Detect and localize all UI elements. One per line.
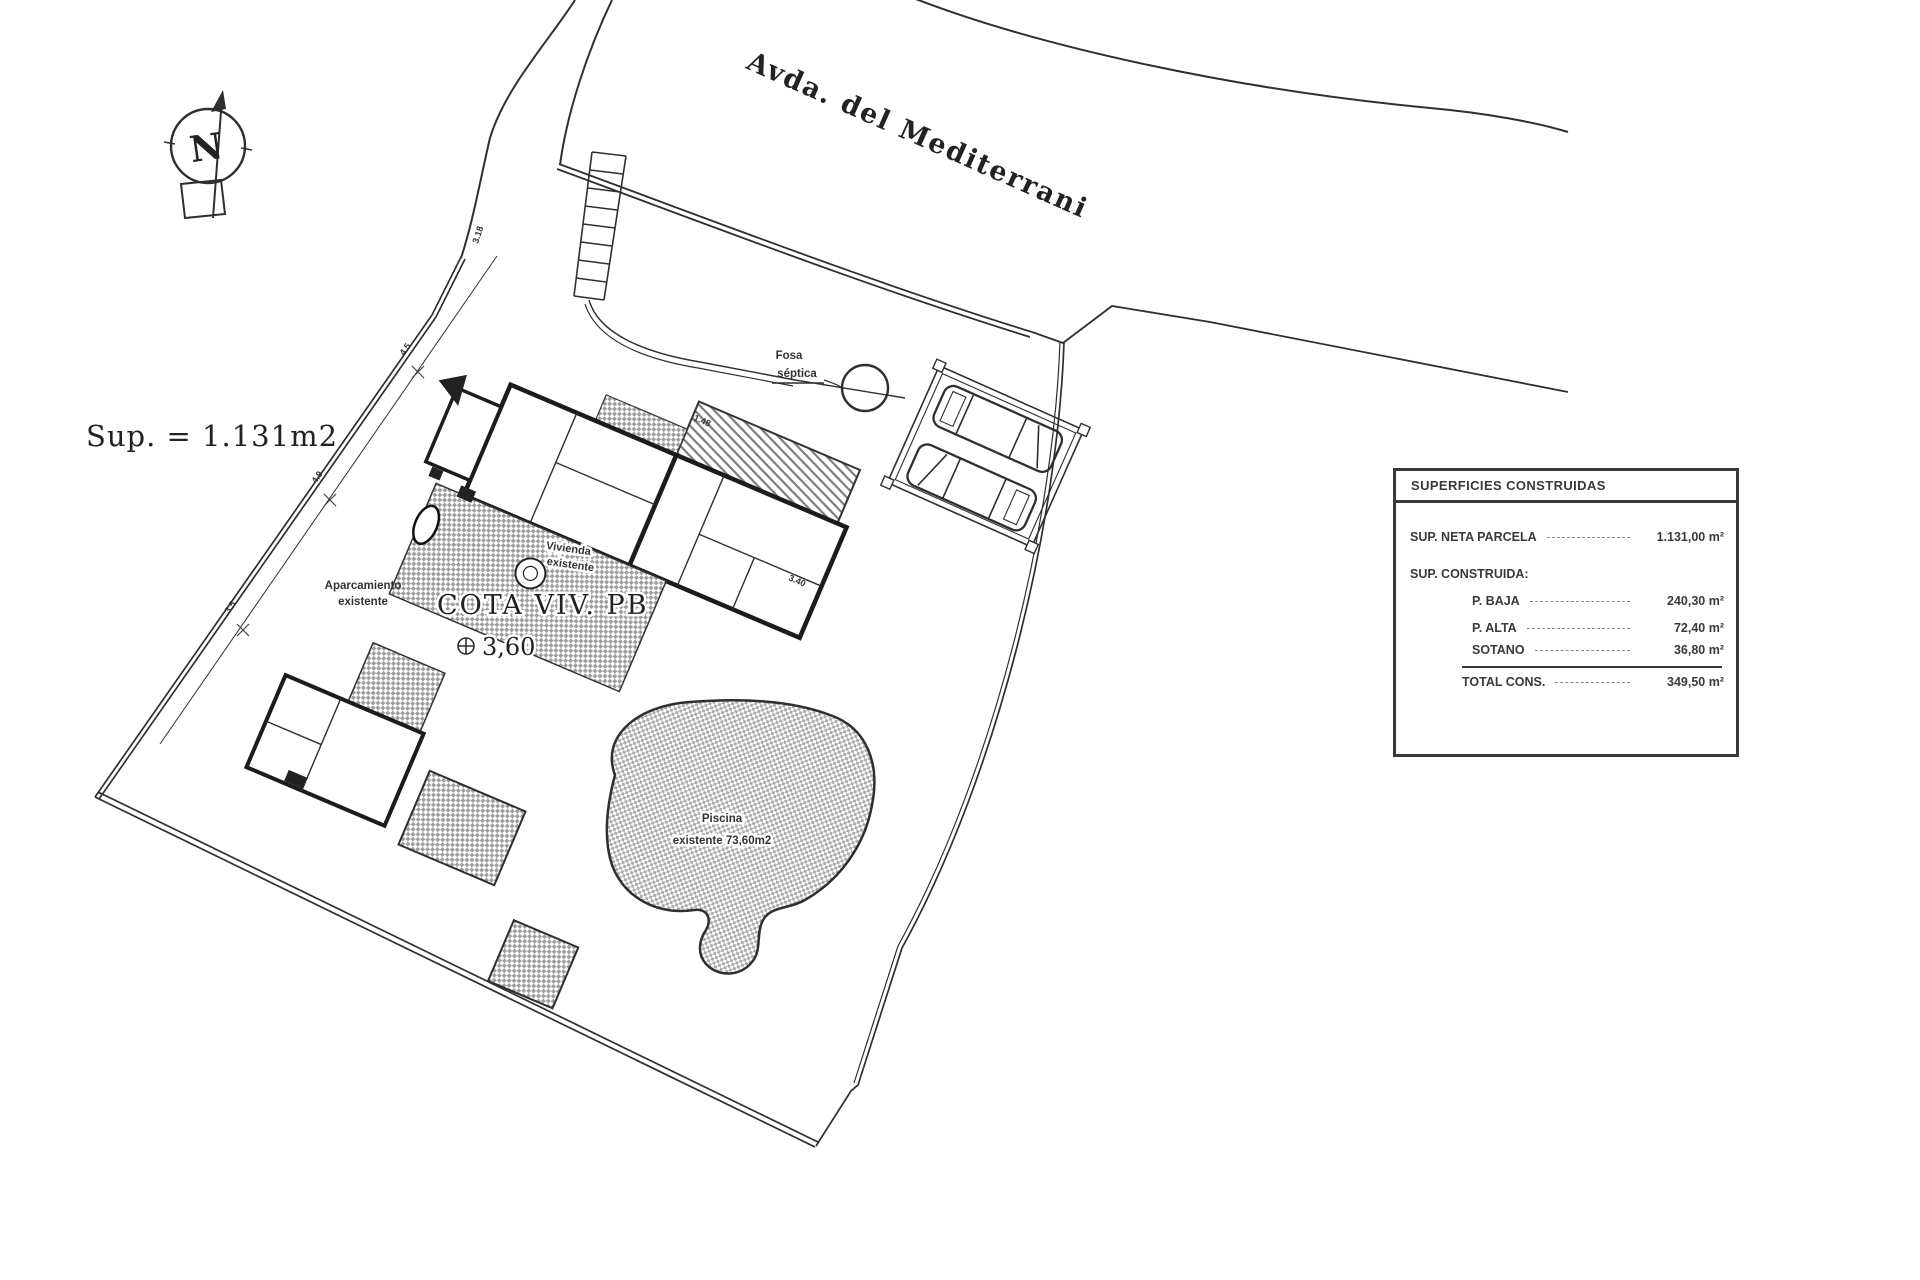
table-row-total: TOTAL CONS. 349,50 m² xyxy=(1462,675,1724,689)
p-baja-value: 240,30 m² xyxy=(1640,594,1724,608)
sum-rule xyxy=(1462,666,1722,668)
p-alta-value: 72,40 m² xyxy=(1640,621,1724,635)
terrace-hatched xyxy=(399,771,526,885)
piscina-label-line2: existente 73,60m2 xyxy=(673,835,771,847)
fosa-label-line2: séptica xyxy=(777,368,817,380)
table-title: SUPERFICIES CONSTRUIDAS xyxy=(1396,471,1736,503)
dotted-leader xyxy=(1555,682,1630,683)
dotted-leader xyxy=(1547,537,1630,538)
cota-value: 3,60 xyxy=(482,633,535,661)
table-row-p-alta: P. ALTA 72,40 m² xyxy=(1472,621,1724,635)
cota-label: COTA VIV. PB xyxy=(437,590,649,621)
table-row-neta-parcela: SUP. NETA PARCELA 1.131,00 m² xyxy=(1410,530,1724,544)
piscina-label-line1: Piscina xyxy=(702,813,743,825)
table-row-sotano: SOTANO 36,80 m² xyxy=(1472,643,1724,657)
aparcamiento-label-line1: Aparcamiento xyxy=(325,580,402,592)
plot-area-label: Sup. = 1.131m2 xyxy=(86,419,338,453)
total-label: TOTAL CONS. xyxy=(1462,675,1545,689)
driveway-entrance xyxy=(461,0,612,258)
level-mark-icon xyxy=(458,638,474,654)
p-alta-label: P. ALTA xyxy=(1472,621,1517,635)
dotted-leader xyxy=(1535,650,1630,651)
garage-building xyxy=(246,616,448,826)
pool: Piscina existente 73,60m2 xyxy=(607,700,874,973)
dim-label: 3.18 xyxy=(470,225,485,245)
neta-parcela-value: 1.131,00 m² xyxy=(1640,530,1724,544)
table-row-construida-header: SUP. CONSTRUIDA: xyxy=(1410,567,1724,581)
car xyxy=(930,383,1065,475)
sotano-value: 36,80 m² xyxy=(1640,643,1724,657)
entrance-stairs xyxy=(574,152,626,300)
construida-header-label: SUP. CONSTRUIDA: xyxy=(1410,567,1529,581)
fosa-label-line1: Fosa xyxy=(776,350,803,362)
north-letter: N xyxy=(187,125,225,171)
dotted-leader xyxy=(1530,601,1630,602)
plot-boundary xyxy=(95,257,1064,1147)
sotano-label: SOTANO xyxy=(1472,643,1525,657)
neta-parcela-label: SUP. NETA PARCELA xyxy=(1410,530,1537,544)
site-plan-page: 4.5 4.9 3.5 Fosa séptica xyxy=(0,0,1920,1280)
carport xyxy=(881,359,1091,553)
dotted-leader xyxy=(1527,628,1630,629)
table-row-p-baja: P. BAJA 240,30 m² xyxy=(1472,594,1724,608)
walkway xyxy=(585,300,905,398)
north-arrow: N xyxy=(164,90,252,218)
aparcamiento-label-line2: existente xyxy=(338,596,388,608)
superficies-table: SUPERFICIES CONSTRUIDAS SUP. NETA PARCEL… xyxy=(1393,468,1739,757)
p-baja-label: P. BAJA xyxy=(1472,594,1520,608)
street-name: Avda. del Mediterrani xyxy=(741,46,1093,225)
total-value: 349,50 m² xyxy=(1640,675,1724,689)
